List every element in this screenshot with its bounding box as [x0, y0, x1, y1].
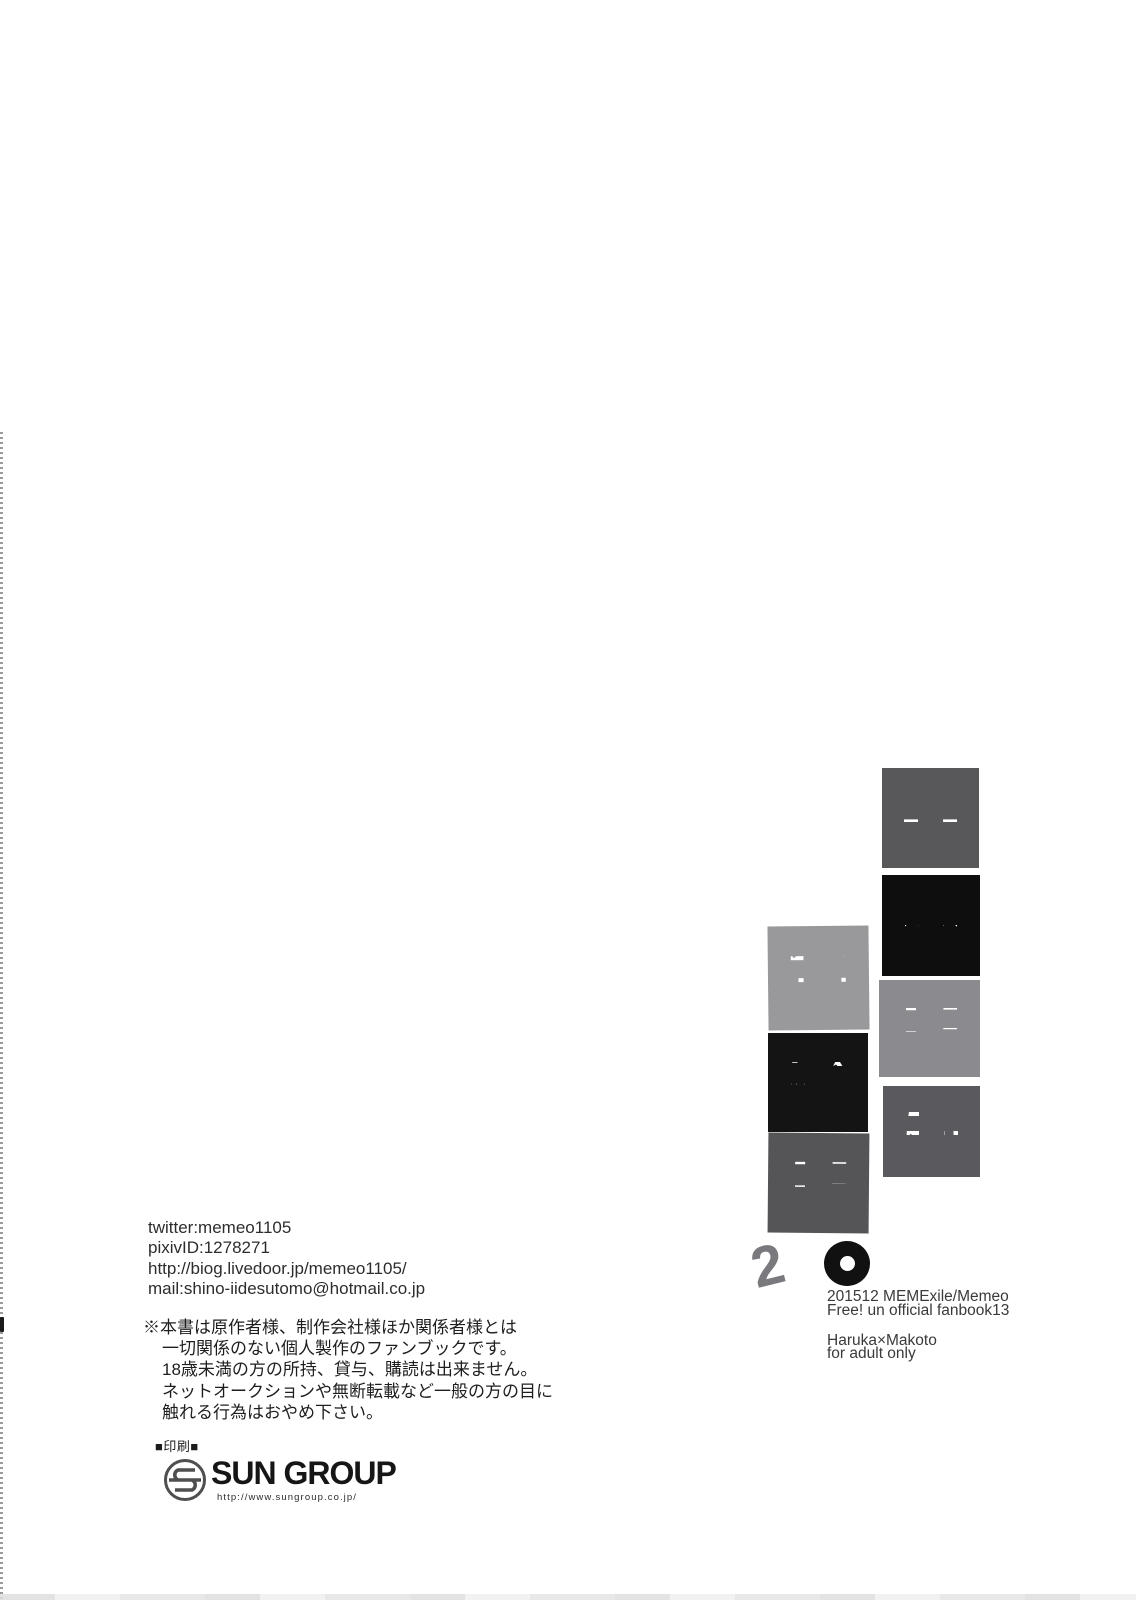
contact-block: twitter:memeo1105 pixivID:1278271 http:/…: [148, 1218, 425, 1299]
title-glyph-teki: 適: [767, 925, 869, 1030]
title-glyph-ki-2: 期: [768, 1133, 870, 1234]
disclaimer-line: 18歳未満の方の所持、貸与、購読は出来ません。: [143, 1359, 553, 1380]
title-period-icon: [824, 1241, 870, 1286]
printer-label: ■印刷■: [155, 1436, 199, 1455]
binding-mark: [0, 1317, 4, 1332]
title-glyph-shun: 春: [882, 875, 980, 976]
printer-name: SUN GROUP: [211, 1455, 396, 1492]
binding-edge: [0, 432, 3, 1600]
scanned-page: 思 春 期 は 適 齢 期 2 twitter:memeo1105 pixivI…: [0, 0, 1136, 1600]
twitter-handle: twitter:memeo1105: [148, 1218, 425, 1238]
bottom-scan-edge: [0, 1594, 1136, 1600]
disclaimer-line: 触れる行為はおやめ下さい。: [143, 1402, 553, 1423]
credits-fanbook-line: Free! un official fanbook13: [827, 1304, 1009, 1318]
blog-url: http://biog.livedoor.jp/memeo1105/: [148, 1259, 425, 1279]
sun-group-logo-icon: [162, 1457, 208, 1503]
title-glyph-wa: は: [883, 1086, 980, 1177]
credits-block: 201512 MEMExile/Memeo Free! un official …: [827, 1290, 1009, 1361]
title-period-hole: [840, 1256, 855, 1271]
printer-logo-block: SUN GROUP http://www.sungroup.co.jp/: [160, 1454, 440, 1512]
pixiv-id: pixivID:1278271: [148, 1238, 425, 1258]
title-glyph-rei: 齢: [768, 1033, 868, 1132]
title-volume-number: 2: [746, 1235, 791, 1298]
disclaimer-block: ※本書は原作者様、制作会社様ほか関係者様とは 一切関係のない個人製作のファンブッ…: [143, 1317, 553, 1423]
title-glyph-shi: 思: [882, 768, 979, 868]
disclaimer-line: ネットオークションや無断転載など一般の方の目に: [143, 1381, 553, 1402]
disclaimer-line: 一切関係のない個人製作のファンブックです。: [143, 1338, 553, 1359]
email-address: mail:shino-iidesutomo@hotmail.co.jp: [148, 1279, 425, 1299]
credits-rating-line: for adult only: [827, 1347, 1009, 1361]
title-glyph-ki: 期: [879, 980, 980, 1077]
disclaimer-line: ※本書は原作者様、制作会社様ほか関係者様とは: [143, 1317, 553, 1338]
printer-url: http://www.sungroup.co.jp/: [217, 1492, 357, 1503]
